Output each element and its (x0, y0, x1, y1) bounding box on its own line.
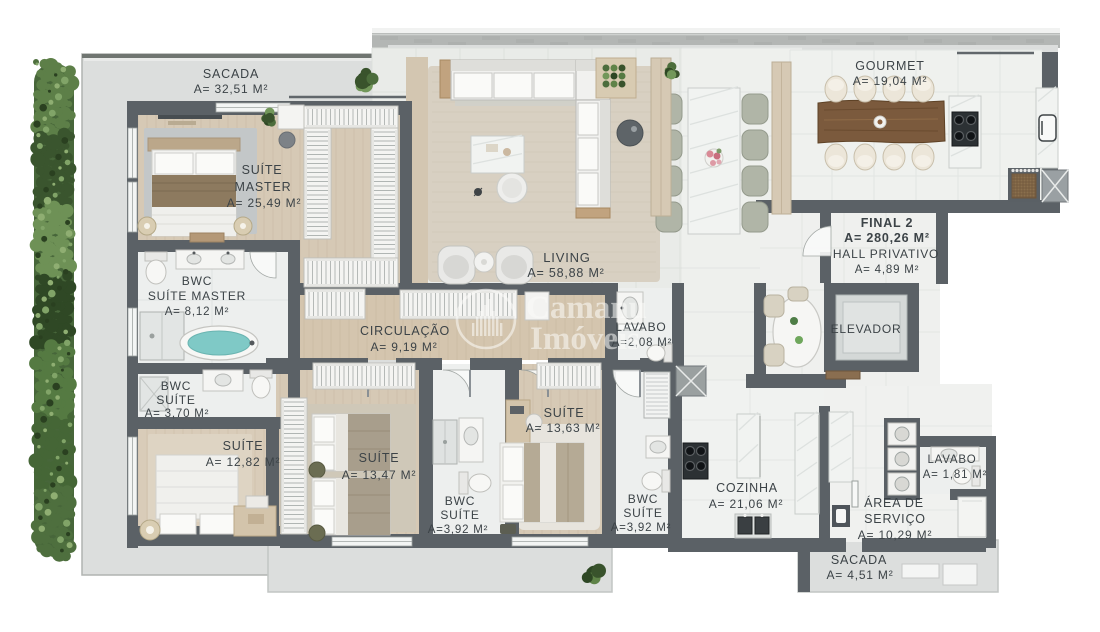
svg-text:A=3,92 M²: A=3,92 M² (428, 524, 489, 536)
svg-text:A= 25,49 M²: A= 25,49 M² (227, 196, 302, 210)
svg-text:A= 280,26 M²: A= 280,26 M² (844, 231, 930, 245)
svg-text:A= 8,12 M²: A= 8,12 M² (165, 306, 230, 318)
svg-text:A=3,92 M²: A=3,92 M² (611, 522, 672, 534)
svg-text:A= 32,51 M²: A= 32,51 M² (194, 82, 269, 96)
svg-text:SACADA: SACADA (831, 553, 887, 567)
svg-text:BWC: BWC (445, 494, 475, 508)
svg-text:A= 13,47 M²: A= 13,47 M² (342, 468, 417, 482)
svg-text:BWC: BWC (628, 492, 658, 506)
svg-text:A= 21,06 M²: A= 21,06 M² (709, 497, 784, 511)
svg-text:SERVIÇO: SERVIÇO (864, 512, 926, 526)
svg-text:SUÍTE MASTER: SUÍTE MASTER (148, 288, 246, 303)
svg-text:GOURMET: GOURMET (855, 59, 925, 73)
svg-text:A= 4,89 M²: A= 4,89 M² (855, 264, 920, 276)
svg-text:COZINHA: COZINHA (716, 481, 778, 495)
svg-text:SUÍTE: SUÍTE (223, 438, 264, 453)
svg-text:A= 9,19 M²: A= 9,19 M² (370, 340, 437, 354)
svg-text:SUÍTE: SUÍTE (440, 507, 479, 522)
svg-text:LIVING: LIVING (543, 250, 590, 265)
svg-text:ELEVADOR: ELEVADOR (831, 322, 902, 336)
svg-text:LAVABO: LAVABO (927, 454, 976, 466)
svg-text:HALL PRIVATIVO: HALL PRIVATIVO (833, 247, 939, 261)
svg-text:A= 3,70 M²: A= 3,70 M² (145, 408, 210, 420)
svg-text:A= 12,82 M²: A= 12,82 M² (206, 455, 281, 469)
svg-text:A= 19,04 M²: A= 19,04 M² (853, 74, 928, 88)
svg-text:SUÍTE: SUÍTE (242, 162, 283, 177)
svg-text:FINAL 2: FINAL 2 (861, 216, 914, 230)
svg-text:Imóveis: Imóveis (530, 321, 640, 357)
svg-text:A= 10,29 M²: A= 10,29 M² (858, 528, 933, 542)
svg-text:SUÍTE: SUÍTE (156, 392, 195, 407)
svg-text:A= 58,88 M²: A= 58,88 M² (527, 266, 604, 280)
svg-text:SUÍTE: SUÍTE (544, 405, 585, 420)
svg-text:CIRCULAÇÃO: CIRCULAÇÃO (360, 324, 450, 338)
svg-text:SUÍTE: SUÍTE (359, 450, 400, 465)
svg-text:BWC: BWC (161, 379, 191, 393)
svg-text:A= 13,63 M²: A= 13,63 M² (526, 421, 601, 435)
svg-text:BWC: BWC (182, 274, 212, 288)
svg-text:SACADA: SACADA (203, 67, 259, 81)
svg-text:A= 4,51 M²: A= 4,51 M² (826, 568, 893, 582)
svg-text:A= 1,81 M²: A= 1,81 M² (923, 469, 988, 481)
svg-text:MASTER: MASTER (235, 180, 292, 194)
svg-text:SUÍTE: SUÍTE (623, 505, 662, 520)
svg-text:ÁREA DE: ÁREA DE (864, 495, 924, 510)
